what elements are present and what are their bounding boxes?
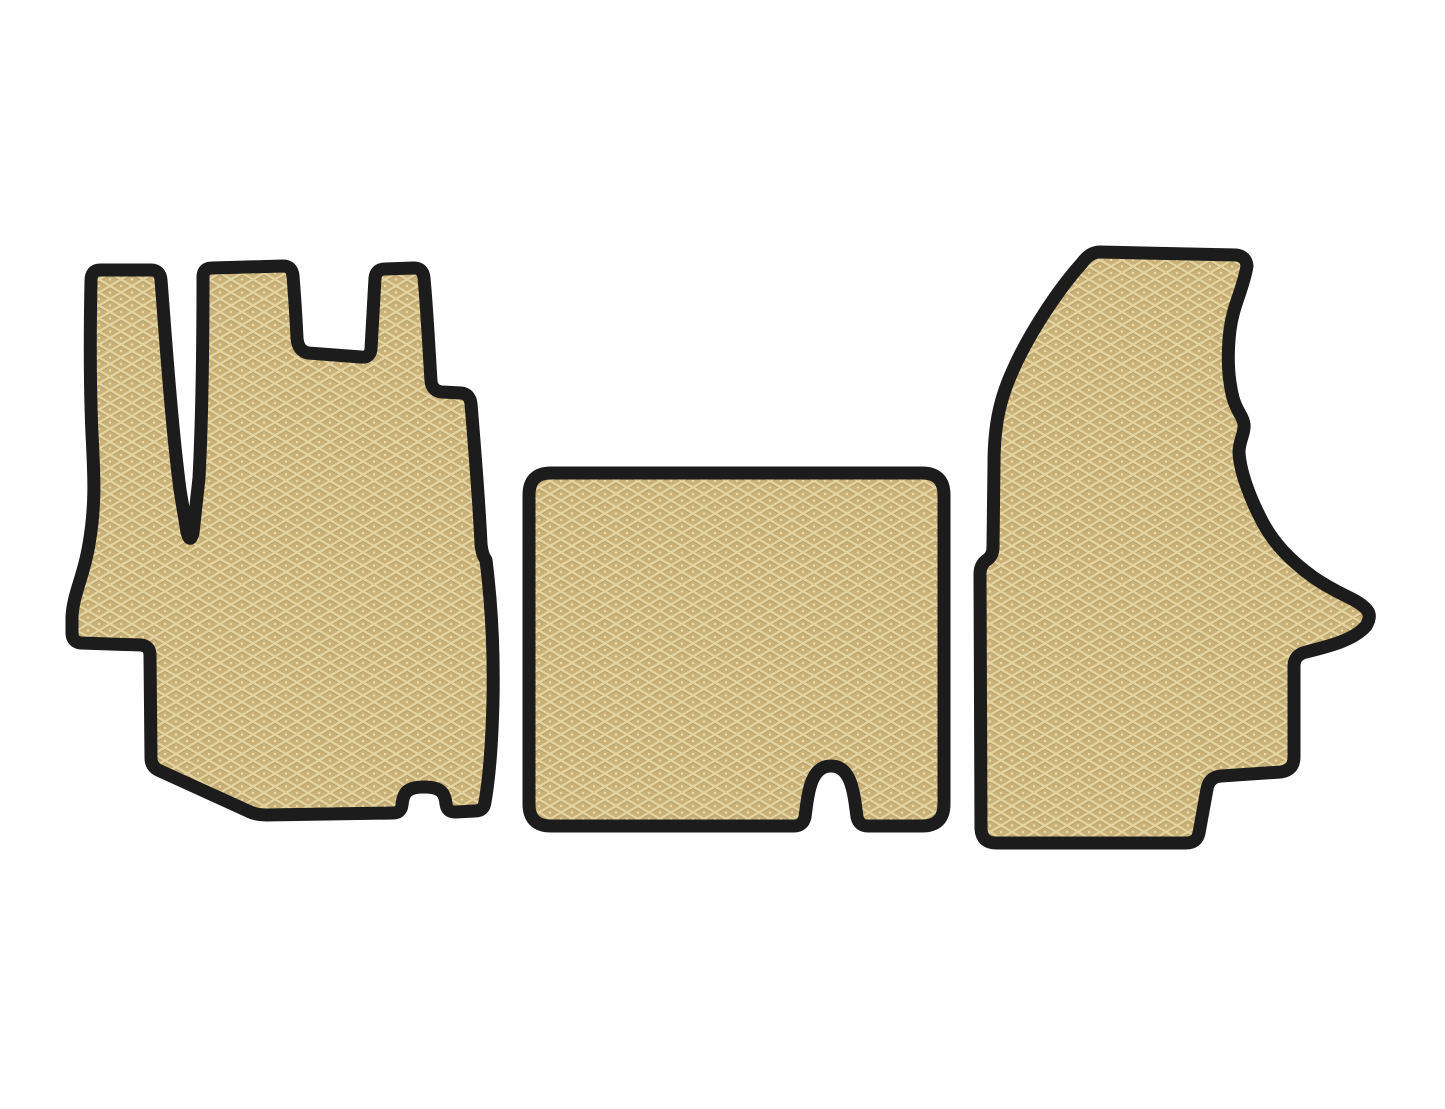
driver-floor-mat xyxy=(72,266,493,815)
product-photo-stage xyxy=(0,0,1445,1109)
center-tunnel-floor-mat xyxy=(529,473,944,826)
floor-mats-product-image xyxy=(0,0,1445,1109)
passenger-floor-mat xyxy=(980,252,1369,843)
